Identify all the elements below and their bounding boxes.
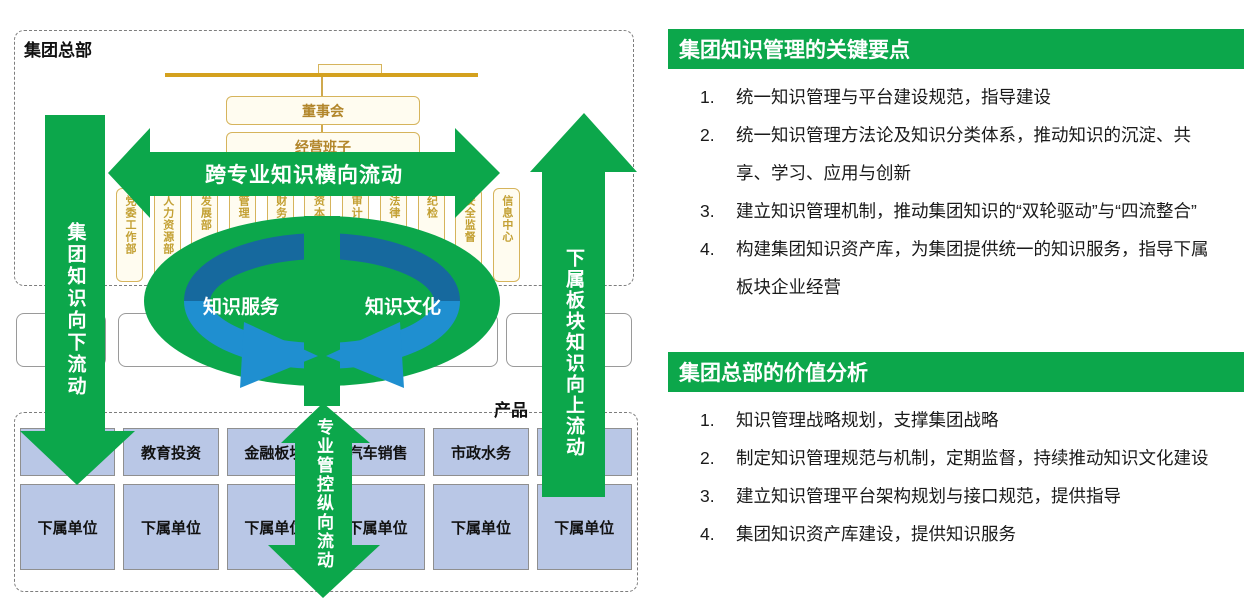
item-number: 4. (700, 230, 736, 306)
value-analysis-list: 1. 知识管理战略规划，支撑集团战略 2. 制定知识管理规范与机制，定期监督，持… (668, 393, 1244, 553)
hq-label: 集团总部 (24, 36, 92, 61)
sector-cell: 市政水务 (433, 428, 528, 476)
knowledge-service-label: 知识服务 (203, 295, 280, 318)
downward-flow-label: 集团知识向下流动 (62, 222, 89, 398)
item-number: 3. (700, 477, 736, 515)
list-item: 2. 制定知识管理规范与机制，定期监督，持续推动知识文化建设 (700, 439, 1224, 477)
list-item: 4. 集团知识资产库建设，提供知识服务 (700, 515, 1224, 553)
key-points-list: 1. 统一知识管理与平台建设规范，指导建设 2. 统一知识管理方法论及知识分类体… (668, 70, 1244, 306)
org-top-rail (165, 73, 478, 77)
list-item: 1. 统一知识管理与平台建设规范，指导建设 (700, 78, 1224, 116)
item-number: 1. (700, 401, 736, 439)
subsidiary-cell: 下属单位 (123, 484, 218, 570)
item-number: 2. (700, 439, 736, 477)
vertical-control-label: 专业管控纵向流动 (311, 418, 336, 570)
item-text: 建立知识管理机制，推动集团知识的“双轮驱动”与“四流整合” (736, 192, 1214, 230)
org-connector (321, 77, 323, 97)
board-of-directors-box: 董事会 (226, 96, 420, 125)
item-number: 4. (700, 515, 736, 553)
list-item: 2. 统一知识管理方法论及知识分类体系，推动知识的沉淀、共享、学习、应用与创新 (700, 116, 1224, 192)
item-number: 1. (700, 78, 736, 116)
list-item: 3. 建立知识管理平台架构规划与接口规范，提供指导 (700, 477, 1224, 515)
section-title-value-analysis: 集团总部的价值分析 (668, 352, 1244, 392)
cycle-center-column (304, 216, 340, 406)
item-number: 2. (700, 116, 736, 192)
subsidiary-cell: 下属单位 (433, 484, 528, 570)
upward-flow-label: 下属板块知识向上流动 (560, 248, 587, 458)
item-text: 知识管理战略规划，支撑集团战略 (736, 401, 1214, 439)
list-item: 1. 知识管理战略规划，支撑集团战略 (700, 401, 1224, 439)
item-text: 统一知识管理与平台建设规范，指导建设 (736, 78, 1214, 116)
item-text: 集团知识资产库建设，提供知识服务 (736, 515, 1214, 553)
item-text: 统一知识管理方法论及知识分类体系，推动知识的沉淀、共享、学习、应用与创新 (736, 116, 1214, 192)
item-text: 制定知识管理规范与机制，定期监督，持续推动知识文化建设 (736, 439, 1214, 477)
item-text: 建立知识管理平台架构规划与接口规范，提供指导 (736, 477, 1214, 515)
knowledge-culture-label: 知识文化 (365, 295, 441, 318)
section-title-key-points: 集团知识管理的关键要点 (668, 29, 1244, 69)
sector-cell: 教育投资 (123, 428, 218, 476)
subsidiary-cell: 下属单位 (20, 484, 115, 570)
list-item: 4. 构建集团知识资产库，为集团提供统一的知识服务，指导下属板块企业经营 (700, 230, 1224, 306)
item-number: 3. (700, 192, 736, 230)
knowledge-cycle-diagram: 知识服务 知识文化 (144, 216, 500, 406)
list-item: 3. 建立知识管理机制，推动集团知识的“双轮驱动”与“四流整合” (700, 192, 1224, 230)
right-panel: 集团知识管理的关键要点 1. 统一知识管理与平台建设规范，指导建设 2. 统一知… (668, 0, 1244, 612)
horizontal-flow-label: 跨专业知识横向流动 (150, 152, 458, 196)
item-text: 构建集团知识资产库，为集团提供统一的知识服务，指导下属板块企业经营 (736, 230, 1214, 306)
